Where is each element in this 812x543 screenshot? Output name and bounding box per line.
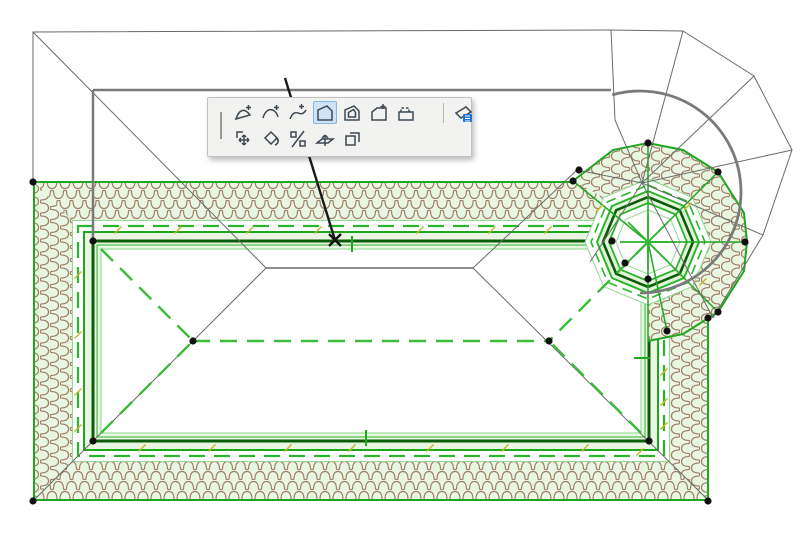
- selection-handle[interactable]: [29, 178, 36, 185]
- selection-handle[interactable]: [741, 238, 748, 245]
- curve-tangent-icon: [288, 103, 308, 123]
- elevate-icon: [315, 129, 335, 149]
- palette-separator: [443, 103, 444, 123]
- selection-handle[interactable]: [545, 337, 552, 344]
- pet-palette[interactable]: [207, 97, 472, 157]
- curve-edge-button[interactable]: [259, 101, 283, 124]
- insert-node-icon: [234, 103, 254, 123]
- selection-handle[interactable]: [644, 275, 651, 282]
- selection-handle[interactable]: [608, 237, 615, 244]
- rotate-icon: [261, 129, 281, 149]
- curve-edge-icon: [261, 103, 281, 123]
- multiply-button[interactable]: [340, 127, 364, 150]
- custom-edge-settings-icon: [453, 103, 473, 123]
- offset-all-edges-button[interactable]: [340, 101, 364, 124]
- cad-canvas[interactable]: { "app": { "description": "Roof plan bei…: [0, 0, 812, 543]
- offset-edge-icon: [315, 103, 335, 123]
- add-to-polygon-button[interactable]: [367, 101, 391, 124]
- add-to-polygon-icon: [369, 103, 389, 123]
- selection-handle[interactable]: [575, 166, 582, 173]
- selection-handle[interactable]: [89, 437, 96, 444]
- selection-handle[interactable]: [621, 259, 628, 266]
- subtract-from-polygon-icon: [396, 103, 416, 123]
- selection-handle[interactable]: [569, 177, 576, 184]
- mirror-icon: [288, 129, 308, 149]
- selection-handle[interactable]: [645, 437, 652, 444]
- selection-handle[interactable]: [714, 308, 721, 315]
- rotate-button[interactable]: [259, 127, 283, 150]
- roof-plan-drawing[interactable]: [0, 0, 812, 543]
- multiply-icon: [342, 129, 362, 149]
- selection-handle[interactable]: [644, 139, 651, 146]
- palette-row-2: [232, 127, 364, 150]
- selection-handle[interactable]: [704, 497, 711, 504]
- selection-handle[interactable]: [29, 497, 36, 504]
- selection-handle[interactable]: [663, 327, 670, 334]
- insert-node-button[interactable]: [232, 101, 256, 124]
- mirror-button[interactable]: [286, 127, 310, 150]
- selection-handle[interactable]: [714, 168, 721, 175]
- custom-edge-settings-button[interactable]: [451, 101, 475, 124]
- drag-button[interactable]: [232, 127, 256, 150]
- drag-icon: [234, 129, 254, 149]
- offset-all-edges-icon: [342, 103, 362, 123]
- selection-handle[interactable]: [189, 337, 196, 344]
- palette-grip-handle[interactable]: [220, 112, 222, 139]
- offset-edge-button[interactable]: [313, 101, 337, 124]
- subtract-from-polygon-button[interactable]: [394, 101, 418, 124]
- elevate-button[interactable]: [313, 127, 337, 150]
- selection-handle[interactable]: [89, 237, 96, 244]
- curve-tangent-button[interactable]: [286, 101, 310, 124]
- selection-handle[interactable]: [704, 314, 711, 321]
- palette-row-1: [232, 101, 475, 124]
